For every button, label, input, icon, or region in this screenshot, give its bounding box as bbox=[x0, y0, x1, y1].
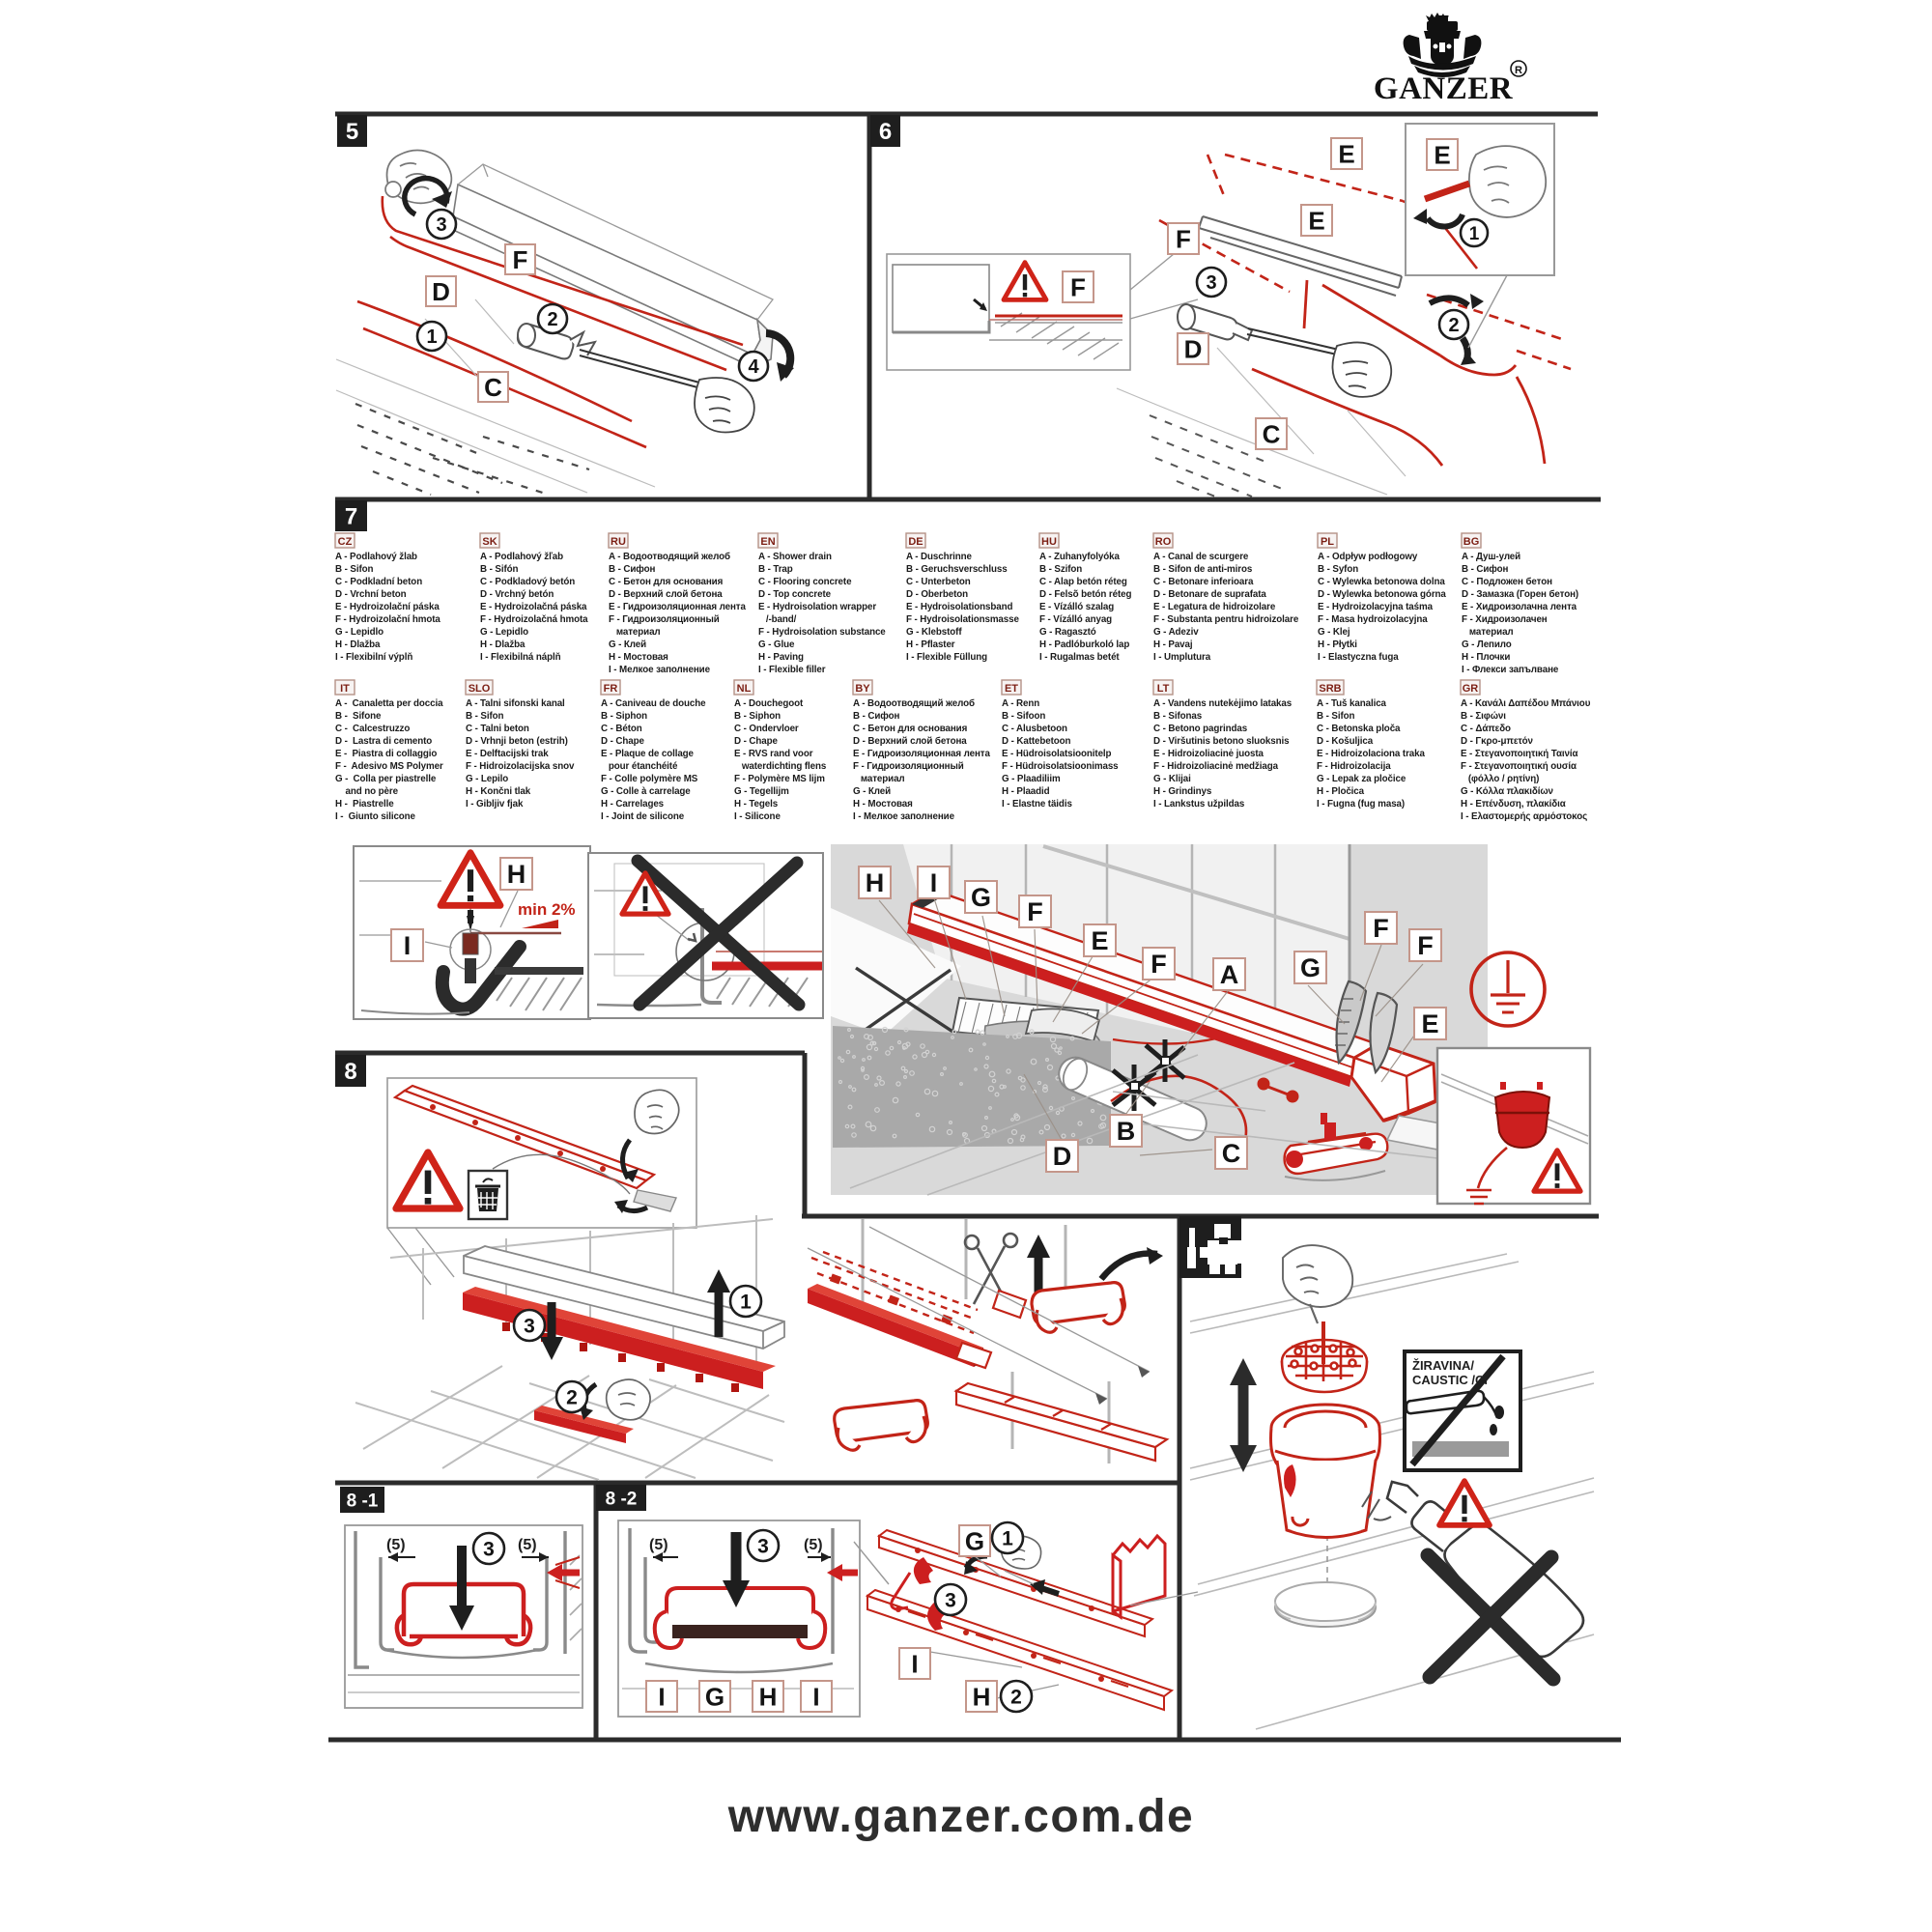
svg-text:(5): (5) bbox=[518, 1537, 537, 1553]
svg-text:I: I bbox=[404, 931, 412, 960]
svg-text:C - Alap betón réteg: C - Alap betón réteg bbox=[1039, 577, 1127, 587]
svg-text:D - Замазка (Горен бетон): D - Замазка (Горен бетон) bbox=[1462, 589, 1578, 600]
svg-text:C - Wylewka betonowa dolna: C - Wylewka betonowa dolna bbox=[1318, 577, 1445, 587]
svg-text:www.ganzer.com.de: www.ganzer.com.de bbox=[727, 1791, 1195, 1842]
svg-text:E - Στεγανοποιητική Ταινία: E - Στεγανοποιητική Ταινία bbox=[1461, 749, 1577, 759]
svg-text:B - Сифон: B - Сифон bbox=[1462, 564, 1509, 575]
svg-text:D - Верхний слой бетона: D - Верхний слой бетона bbox=[609, 589, 723, 600]
svg-text:C - Ondervloer: C - Ondervloer bbox=[734, 724, 799, 734]
svg-text:C - Béton: C - Béton bbox=[601, 724, 642, 734]
svg-text:I - Ελαστομερής αρμόστοκος: I - Ελαστομερής αρμόστοκος bbox=[1461, 811, 1587, 822]
svg-text:RO: RO bbox=[1155, 536, 1172, 548]
svg-text:D - Košuljica: D - Košuljica bbox=[1317, 736, 1374, 747]
svg-text:D - Kattebetoon: D - Kattebetoon bbox=[1002, 736, 1071, 747]
svg-text:E - Гидроизоляционная лента: E - Гидроизоляционная лента bbox=[609, 602, 746, 612]
svg-text:B - Sifon de anti-miros: B - Sifon de anti-miros bbox=[1153, 564, 1253, 575]
svg-text:2: 2 bbox=[566, 1387, 578, 1409]
svg-text:F - Гидроизоляционный: F - Гидроизоляционный bbox=[609, 614, 720, 625]
svg-text:8 -1: 8 -1 bbox=[347, 1491, 379, 1511]
svg-text:G - Adeziv: G - Adeziv bbox=[1153, 627, 1199, 638]
svg-text:E - Hidroizolaciona traka: E - Hidroizolaciona traka bbox=[1317, 749, 1425, 759]
svg-text:H - Płytki: H - Płytki bbox=[1318, 639, 1357, 650]
svg-text:B - Sifonas: B - Sifonas bbox=[1153, 711, 1203, 722]
svg-text:E - Legatura de hidroizolare: E - Legatura de hidroizolare bbox=[1153, 602, 1276, 612]
svg-text:1: 1 bbox=[1002, 1528, 1013, 1550]
svg-text:B: B bbox=[1117, 1117, 1136, 1146]
svg-text:E - Hydroisolationsband: E - Hydroisolationsband bbox=[906, 602, 1012, 612]
svg-text:G - Colla per piastrelle: G - Colla per piastrelle bbox=[335, 774, 437, 784]
svg-text:B - Sifon: B - Sifon bbox=[466, 711, 503, 722]
svg-text:F: F bbox=[1151, 950, 1167, 979]
svg-text:H - Мостовая: H - Мостовая bbox=[609, 652, 668, 663]
svg-text:I - Флекси запълване: I - Флекси запълване bbox=[1462, 665, 1559, 675]
svg-text:F - Хидроизолачен: F - Хидроизолачен bbox=[1462, 614, 1548, 625]
svg-text:I: I bbox=[911, 1649, 918, 1678]
svg-text:G: G bbox=[971, 883, 991, 912]
svg-text:G - Клей: G - Клей bbox=[853, 786, 891, 797]
svg-text:D - Oberbeton: D - Oberbeton bbox=[906, 589, 968, 600]
svg-text:C - Δάπεδο: C - Δάπεδο bbox=[1461, 724, 1511, 734]
svg-text:B - Siphon: B - Siphon bbox=[734, 711, 781, 722]
svg-text:R: R bbox=[1515, 65, 1522, 76]
svg-text:I - Flexible filler: I - Flexible filler bbox=[758, 665, 826, 675]
svg-text:F - Hidroizolacija: F - Hidroizolacija bbox=[1317, 761, 1391, 772]
svg-text:B - Сифон: B - Сифон bbox=[609, 564, 656, 575]
svg-text:F - Hydroisolationsmasse: F - Hydroisolationsmasse bbox=[906, 614, 1019, 625]
svg-text:D - Chape: D - Chape bbox=[601, 736, 644, 747]
svg-text:F - Adesivo MS Polymer: F - Adesivo MS Polymer bbox=[335, 761, 443, 772]
svg-text:C - Betonska ploča: C - Betonska ploča bbox=[1317, 724, 1401, 734]
svg-text:G - Glue: G - Glue bbox=[758, 639, 795, 650]
svg-text:G - Lepak za pločice: G - Lepak za pločice bbox=[1317, 774, 1406, 784]
svg-text:8: 8 bbox=[344, 1059, 356, 1085]
svg-text:F: F bbox=[1417, 931, 1434, 960]
svg-text:D - Wylewka betonowa górna: D - Wylewka betonowa górna bbox=[1318, 589, 1446, 600]
svg-text:G - Lepidlo: G - Lepidlo bbox=[335, 627, 384, 638]
svg-text:B - Sifoon: B - Sifoon bbox=[1002, 711, 1045, 722]
svg-text:F - Vízálló anyag: F - Vízálló anyag bbox=[1039, 614, 1112, 625]
svg-text:B - Sifon: B - Sifon bbox=[1317, 711, 1354, 722]
svg-text:C - Talni beton: C - Talni beton bbox=[466, 724, 529, 734]
svg-text:A - Водоотводящий желоб: A - Водоотводящий желоб bbox=[609, 552, 730, 562]
svg-text:E: E bbox=[1434, 140, 1450, 169]
svg-text:C - Unterbeton: C - Unterbeton bbox=[906, 577, 971, 587]
svg-text:DE: DE bbox=[908, 536, 923, 548]
svg-text:IT: IT bbox=[340, 683, 350, 695]
svg-text:LT: LT bbox=[1157, 683, 1170, 695]
svg-text:G - Lepilo: G - Lepilo bbox=[466, 774, 508, 784]
svg-text:D - Felsõ betón réteg: D - Felsõ betón réteg bbox=[1039, 589, 1131, 600]
svg-text:материал: материал bbox=[609, 627, 661, 638]
svg-text:I - Elastne täidis: I - Elastne täidis bbox=[1002, 799, 1072, 810]
svg-text:3: 3 bbox=[436, 214, 446, 236]
svg-text:B - Syfon: B - Syfon bbox=[1318, 564, 1358, 575]
svg-text:I - Joint de silicone: I - Joint de silicone bbox=[601, 811, 685, 822]
svg-text:B - Sifone: B - Sifone bbox=[335, 711, 382, 722]
svg-text:1: 1 bbox=[1469, 224, 1480, 244]
svg-text:1: 1 bbox=[740, 1292, 752, 1314]
svg-text:4: 4 bbox=[748, 356, 759, 378]
svg-text:G - Klijai: G - Klijai bbox=[1153, 774, 1191, 784]
svg-text:I - Flexibilná náplň: I - Flexibilná náplň bbox=[480, 652, 561, 663]
svg-text:A - Shower drain: A - Shower drain bbox=[758, 552, 832, 562]
svg-text:G - Клей: G - Клей bbox=[609, 639, 646, 650]
svg-text:G - Plaadiliim: G - Plaadiliim bbox=[1002, 774, 1061, 784]
svg-text:A - Κανάλι Δαπέδου Μπάνιου: A - Κανάλι Δαπέδου Μπάνιου bbox=[1461, 698, 1591, 709]
svg-text:A - Водоотводящий желоб: A - Водоотводящий желоб bbox=[853, 698, 975, 709]
svg-text:A - Podlahový žľab: A - Podlahový žľab bbox=[480, 552, 563, 562]
svg-text:GANZER: GANZER bbox=[1374, 71, 1514, 106]
svg-text:E - Vízálló szalag: E - Vízálló szalag bbox=[1039, 602, 1114, 612]
svg-text:H: H bbox=[973, 1682, 991, 1711]
svg-text:(φόλλο / ρητίνη): (φόλλο / ρητίνη) bbox=[1461, 774, 1539, 784]
svg-text:C - Flooring concrete: C - Flooring concrete bbox=[758, 577, 852, 587]
svg-text:E - Хидроизолачна лента: E - Хидроизолачна лента bbox=[1462, 602, 1577, 612]
svg-text:H - Padlóburkoló lap: H - Padlóburkoló lap bbox=[1039, 639, 1129, 650]
svg-text:I - Lankstus užpildas: I - Lankstus užpildas bbox=[1153, 799, 1245, 810]
svg-text:D - Chape: D - Chape bbox=[734, 736, 778, 747]
svg-text:F - Polymère MS lijm: F - Polymère MS lijm bbox=[734, 774, 825, 784]
svg-text:A - Talni sifonski kanal: A - Talni sifonski kanal bbox=[466, 698, 565, 709]
svg-text:F - Гидроизоляционный: F - Гидроизоляционный bbox=[853, 761, 964, 772]
svg-text:E - Hydroisolation wrapper: E - Hydroisolation wrapper bbox=[758, 602, 876, 612]
svg-text:I - Flexible Füllung: I - Flexible Füllung bbox=[906, 652, 987, 663]
svg-text:BG: BG bbox=[1463, 536, 1480, 548]
svg-text:C - Alusbetoon: C - Alusbetoon bbox=[1002, 724, 1067, 734]
svg-text:I - Мелкое заполнение: I - Мелкое заполнение bbox=[853, 811, 955, 822]
svg-text:B - Trap: B - Trap bbox=[758, 564, 793, 575]
svg-text:G: G bbox=[965, 1526, 984, 1555]
svg-text:H - Επένδυση, πλακίδια: H - Επένδυση, πλακίδια bbox=[1461, 799, 1566, 810]
svg-text:G - Κόλλα πλακιδίων: G - Κόλλα πλακιδίων bbox=[1461, 786, 1553, 797]
svg-text:F - Hüdroisolatsioonimass: F - Hüdroisolatsioonimass bbox=[1002, 761, 1119, 772]
svg-text:SK: SK bbox=[482, 536, 497, 548]
svg-text:5: 5 bbox=[346, 119, 358, 145]
svg-text:E - RVS rand voor: E - RVS rand voor bbox=[734, 749, 813, 759]
svg-text:C - Betonare inferioara: C - Betonare inferioara bbox=[1153, 577, 1254, 587]
svg-text:BY: BY bbox=[855, 683, 870, 695]
svg-text:PL: PL bbox=[1321, 536, 1334, 548]
svg-text:min 2%: min 2% bbox=[518, 900, 576, 919]
svg-text:6: 6 bbox=[879, 119, 892, 145]
svg-text:H - Dlažba: H - Dlažba bbox=[335, 639, 381, 650]
svg-text:I - Giunto silicone: I - Giunto silicone bbox=[335, 811, 416, 822]
svg-text:SRB: SRB bbox=[1319, 683, 1341, 695]
svg-text:H - Paving: H - Paving bbox=[758, 652, 804, 663]
svg-text:B - Сифон: B - Сифон bbox=[853, 711, 900, 722]
svg-text:1: 1 bbox=[426, 327, 437, 348]
svg-text:FR: FR bbox=[604, 683, 618, 695]
svg-text:A - Podlahový žlab: A - Podlahový žlab bbox=[335, 552, 417, 562]
svg-text:D - Γκρο-μπετόν: D - Γκρο-μπετόν bbox=[1461, 736, 1534, 747]
svg-text:RU: RU bbox=[611, 536, 626, 548]
svg-text:E - Hidroizoliacinė juosta: E - Hidroizoliacinė juosta bbox=[1153, 749, 1264, 759]
svg-text:C - Бетон для основания: C - Бетон для основания bbox=[853, 724, 968, 734]
svg-text:A - Canal de scurgere: A - Canal de scurgere bbox=[1153, 552, 1249, 562]
svg-text:A - Odpływ podłogowy: A - Odpływ podłogowy bbox=[1318, 552, 1418, 562]
svg-text:E: E bbox=[1308, 206, 1324, 235]
svg-text:H - Carrelages: H - Carrelages bbox=[601, 799, 665, 810]
svg-text:A - Zuhanyfolyóka: A - Zuhanyfolyóka bbox=[1039, 552, 1121, 562]
svg-text:GR: GR bbox=[1463, 683, 1479, 695]
svg-text:I - Rugalmas betét: I - Rugalmas betét bbox=[1039, 652, 1120, 663]
svg-text:I: I bbox=[658, 1682, 665, 1711]
svg-text:3: 3 bbox=[757, 1536, 769, 1558]
svg-text:E - Plaque de collage: E - Plaque de collage bbox=[601, 749, 695, 759]
svg-text:I - Gibljiv fjak: I - Gibljiv fjak bbox=[466, 799, 524, 810]
svg-text:материал: материал bbox=[1462, 627, 1514, 638]
svg-text:EN: EN bbox=[760, 536, 775, 548]
svg-text:H - Končni tlak: H - Končni tlak bbox=[466, 786, 531, 797]
svg-text:2: 2 bbox=[1010, 1687, 1022, 1709]
svg-text:F: F bbox=[1027, 897, 1043, 926]
svg-text:C - Подложен бетон: C - Подложен бетон bbox=[1462, 577, 1552, 587]
svg-text:G - Klebstoff: G - Klebstoff bbox=[906, 627, 962, 638]
svg-text:F - Hidroizoliacinė medžiaga: F - Hidroizoliacinė medžiaga bbox=[1153, 761, 1279, 772]
svg-text:A - Duschrinne: A - Duschrinne bbox=[906, 552, 973, 562]
svg-text:H - Tegels: H - Tegels bbox=[734, 799, 779, 810]
svg-text:2: 2 bbox=[1448, 315, 1459, 336]
svg-text:G: G bbox=[1300, 953, 1321, 982]
svg-text:E: E bbox=[1421, 1009, 1438, 1038]
svg-text:H: H bbox=[507, 860, 526, 889]
svg-text:F - Hydroizolační hmota: F - Hydroizolační hmota bbox=[335, 614, 440, 625]
svg-text:F: F bbox=[1070, 272, 1086, 301]
svg-text:A - Душ-улей: A - Душ-улей bbox=[1462, 552, 1520, 562]
svg-text:H - Pavaj: H - Pavaj bbox=[1153, 639, 1193, 650]
svg-text:A - Renn: A - Renn bbox=[1002, 698, 1039, 709]
svg-text:I - Umplutura: I - Umplutura bbox=[1153, 652, 1211, 663]
svg-text:G - Colle à carrelage: G - Colle à carrelage bbox=[601, 786, 691, 797]
svg-text:A - Vandens nutekėjimo latakas: A - Vandens nutekėjimo latakas bbox=[1153, 698, 1293, 709]
svg-text:H: H bbox=[866, 868, 885, 897]
svg-text:B - Geruchsverschluss: B - Geruchsverschluss bbox=[906, 564, 1008, 575]
svg-text:H - Grindinys: H - Grindinys bbox=[1153, 786, 1212, 797]
svg-text:C - Betono pagrindas: C - Betono pagrindas bbox=[1153, 724, 1248, 734]
svg-text:7: 7 bbox=[345, 504, 357, 530]
svg-text:B - Σιφώνι: B - Σιφώνι bbox=[1461, 711, 1506, 722]
svg-text:E: E bbox=[1338, 139, 1354, 168]
svg-text:F - Hydroizolačná hmota: F - Hydroizolačná hmota bbox=[480, 614, 588, 625]
svg-text:/-band/: /-band/ bbox=[758, 614, 797, 625]
svg-text:waterdichting flens: waterdichting flens bbox=[734, 761, 827, 772]
svg-text:C - Бетон для основания: C - Бетон для основания bbox=[609, 577, 724, 587]
svg-text:ET: ET bbox=[1005, 683, 1018, 695]
svg-text:F: F bbox=[1176, 224, 1191, 253]
svg-text:F - Substanta pentru hidroizol: F - Substanta pentru hidroizolare bbox=[1153, 614, 1299, 625]
svg-text:H - Pflaster: H - Pflaster bbox=[906, 639, 955, 650]
svg-text:B - Szifon: B - Szifon bbox=[1039, 564, 1082, 575]
svg-text:D - Vrchní beton: D - Vrchní beton bbox=[335, 589, 407, 600]
svg-text:C: C bbox=[1263, 419, 1281, 448]
svg-text:C - Calcestruzzo: C - Calcestruzzo bbox=[335, 724, 410, 734]
svg-text:F: F bbox=[513, 245, 528, 274]
svg-text:F - Στεγανοποιητική ουσία: F - Στεγανοποιητική ουσία bbox=[1461, 761, 1577, 772]
svg-text:H - Мостовая: H - Мостовая bbox=[853, 799, 913, 810]
svg-text:H - Piastrelle: H - Piastrelle bbox=[335, 799, 394, 810]
svg-text:H - Dlažba: H - Dlažba bbox=[480, 639, 526, 650]
svg-text:I - Мелкое заполнение: I - Мелкое заполнение bbox=[609, 665, 711, 675]
svg-text:E - Delftacijski trak: E - Delftacijski trak bbox=[466, 749, 549, 759]
svg-text:C: C bbox=[1222, 1139, 1241, 1168]
svg-text:I - Silicone: I - Silicone bbox=[734, 811, 781, 822]
svg-text:2: 2 bbox=[547, 309, 557, 330]
svg-text:E - Hydroizolacyjna taśma: E - Hydroizolacyjna taśma bbox=[1318, 602, 1434, 612]
svg-text:I - Elastyczna fuga: I - Elastyczna fuga bbox=[1318, 652, 1399, 663]
svg-text:(5): (5) bbox=[649, 1537, 668, 1553]
svg-text:D: D bbox=[432, 277, 450, 306]
svg-text:G - Lepidlo: G - Lepidlo bbox=[480, 627, 528, 638]
svg-text:D - Top concrete: D - Top concrete bbox=[758, 589, 832, 600]
svg-text:D - Viršutinis betono sluoksni: D - Viršutinis betono sluoksnis bbox=[1153, 736, 1290, 747]
svg-text:D - Vrchný betón: D - Vrchný betón bbox=[480, 589, 554, 600]
svg-text:(5): (5) bbox=[804, 1537, 823, 1553]
svg-text:8 -2: 8 -2 bbox=[606, 1489, 638, 1509]
svg-text:and no père: and no père bbox=[335, 786, 399, 797]
svg-text:D - Верхний слой бетона: D - Верхний слой бетона bbox=[853, 736, 967, 747]
svg-text:G - Klej: G - Klej bbox=[1318, 627, 1350, 638]
svg-text:H - Plaadid: H - Plaadid bbox=[1002, 786, 1050, 797]
svg-text:H - Pločica: H - Pločica bbox=[1317, 786, 1365, 797]
svg-text:CZ: CZ bbox=[338, 536, 353, 548]
svg-text:F - Hydroisolation substance: F - Hydroisolation substance bbox=[758, 627, 886, 638]
svg-text:I - Flexibilní výplň: I - Flexibilní výplň bbox=[335, 652, 412, 663]
svg-text:A: A bbox=[1220, 960, 1239, 989]
svg-text:C - Podkladní beton: C - Podkladní beton bbox=[335, 577, 422, 587]
svg-text:G - Ragasztó: G - Ragasztó bbox=[1039, 627, 1096, 638]
svg-text:D - Vrhnji beton (estrih): D - Vrhnji beton (estrih) bbox=[466, 736, 568, 747]
svg-text:F - Hidroizolacijska snov: F - Hidroizolacijska snov bbox=[466, 761, 575, 772]
svg-text:I: I bbox=[930, 868, 938, 897]
svg-text:материал: материал bbox=[853, 774, 905, 784]
svg-text:F: F bbox=[1373, 914, 1389, 943]
svg-text:C: C bbox=[484, 373, 502, 402]
svg-text:D: D bbox=[1184, 334, 1203, 363]
svg-text:A - Douchegoot: A - Douchegoot bbox=[734, 698, 804, 709]
svg-text:F - Masa hydroizolacyjna: F - Masa hydroizolacyjna bbox=[1318, 614, 1428, 625]
svg-text:E - Гидроизоляционная лента: E - Гидроизоляционная лента bbox=[853, 749, 990, 759]
svg-text:3: 3 bbox=[1206, 272, 1216, 294]
svg-text:A - Canaletta per doccia: A - Canaletta per doccia bbox=[335, 698, 443, 709]
svg-text:G - Лепило: G - Лепило bbox=[1462, 639, 1512, 650]
svg-text:G - Tegellijm: G - Tegellijm bbox=[734, 786, 789, 797]
svg-text:H - Плочки: H - Плочки bbox=[1462, 652, 1510, 663]
svg-text:A - Caniveau de douche: A - Caniveau de douche bbox=[601, 698, 706, 709]
svg-text:C - Podkladový betón: C - Podkladový betón bbox=[480, 577, 575, 587]
svg-text:B - Sifón: B - Sifón bbox=[480, 564, 518, 575]
svg-text:SLO: SLO bbox=[469, 683, 491, 695]
svg-text:B - Sifon: B - Sifon bbox=[335, 564, 373, 575]
svg-text:pour étanchéité: pour étanchéité bbox=[601, 761, 678, 772]
svg-text:D - Lastra di cemento: D - Lastra di cemento bbox=[335, 736, 432, 747]
svg-text:H: H bbox=[759, 1682, 778, 1711]
svg-text:F - Colle polymère MS: F - Colle polymère MS bbox=[601, 774, 698, 784]
svg-text:E - Hydroizolačná páska: E - Hydroizolačná páska bbox=[480, 602, 587, 612]
svg-text:(5): (5) bbox=[386, 1537, 406, 1553]
svg-text:E - Piastra di collaggio: E - Piastra di collaggio bbox=[335, 749, 437, 759]
svg-text:G: G bbox=[705, 1682, 724, 1711]
svg-text:HU: HU bbox=[1041, 536, 1057, 548]
svg-text:I - Fugna (fug masa): I - Fugna (fug masa) bbox=[1317, 799, 1405, 810]
svg-text:E - Hydroizolační páska: E - Hydroizolační páska bbox=[335, 602, 440, 612]
svg-text:E: E bbox=[1091, 926, 1108, 955]
svg-text:D - Betonare de suprafata: D - Betonare de suprafata bbox=[1153, 589, 1266, 600]
svg-text:B - Siphon: B - Siphon bbox=[601, 711, 647, 722]
svg-text:3: 3 bbox=[524, 1316, 535, 1338]
svg-text:3: 3 bbox=[483, 1539, 495, 1561]
svg-text:E - Hüdroisolatsioonitelp: E - Hüdroisolatsioonitelp bbox=[1002, 749, 1112, 759]
svg-text:3: 3 bbox=[945, 1590, 956, 1612]
svg-text:I: I bbox=[812, 1682, 819, 1711]
svg-text:A - Tuš kanalica: A - Tuš kanalica bbox=[1317, 698, 1387, 709]
svg-text:ŽIRAVINA/: ŽIRAVINA/ bbox=[1412, 1358, 1474, 1373]
svg-text:NL: NL bbox=[737, 683, 752, 695]
svg-text:D: D bbox=[1053, 1142, 1072, 1171]
